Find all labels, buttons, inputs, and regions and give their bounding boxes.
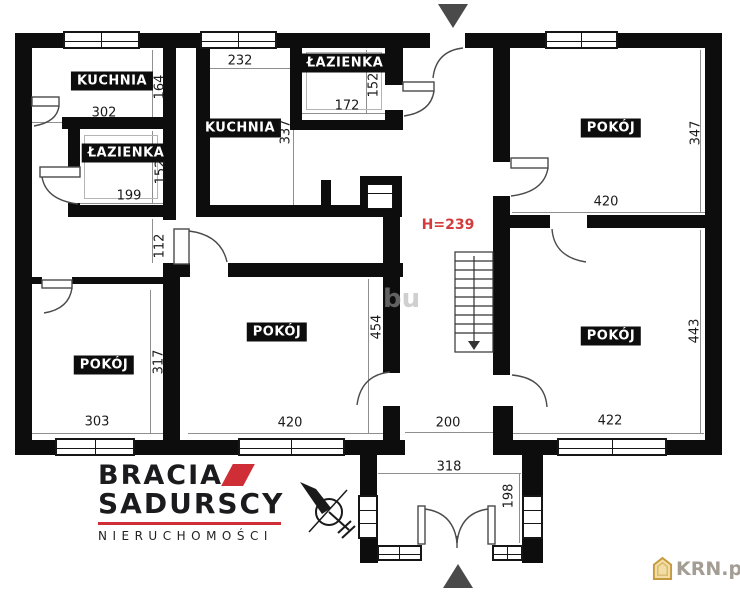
portal-name: KRN.pl (676, 558, 740, 580)
wall (705, 33, 722, 455)
dim-164: 164 (153, 75, 168, 100)
window (200, 31, 277, 49)
agency-name-line1: BRACIA (98, 462, 223, 489)
room-label-pokoj-bottom-right: POKÓJ (581, 327, 641, 346)
wall (290, 120, 403, 130)
wall (360, 537, 378, 563)
door-arc (425, 509, 457, 543)
window (358, 495, 378, 539)
dim-443: 443 (688, 319, 703, 344)
wall (30, 277, 42, 284)
door-arc (34, 106, 59, 126)
dim-198: 198 (502, 484, 517, 509)
room-label-kuchnia-top-left: KUCHNIA (71, 72, 153, 91)
window (545, 31, 618, 49)
dim-422: 422 (598, 414, 623, 429)
wall (72, 277, 168, 284)
wall (493, 48, 510, 162)
dim-line (405, 432, 493, 433)
portal-house-icon (652, 556, 673, 581)
door-leaf (42, 280, 72, 288)
wall (587, 215, 722, 228)
window (377, 545, 422, 561)
wall (383, 406, 400, 440)
dim-line (32, 433, 163, 434)
agency-logo: BRACIA SADURSCY NIERUCHOMOŚCI (98, 462, 284, 543)
door-leaf (32, 97, 59, 106)
door-arc (44, 288, 72, 313)
wall (360, 455, 377, 497)
agency-tagline: NIERUCHOMOŚCI (98, 529, 284, 543)
room-label-pokoj-center: POKÓJ (247, 323, 307, 342)
entrance-arrow-top (438, 4, 468, 28)
door-arc (511, 168, 548, 196)
wall (228, 263, 403, 277)
dim-337: 337 (279, 120, 294, 145)
logo-red-slash (221, 464, 255, 486)
dim-454: 454 (370, 315, 385, 340)
wall (493, 228, 510, 375)
door-arc (357, 372, 390, 405)
chimney-flue (367, 184, 393, 209)
dim-347: 347 (689, 121, 704, 146)
room-label-pokoj-bottom-left: POKÓJ (74, 356, 134, 375)
room-label-pokoj-top-right: POKÓJ (581, 119, 641, 138)
staircase (455, 252, 493, 352)
window (557, 438, 667, 456)
wall (68, 129, 80, 169)
dim-line (368, 279, 369, 433)
wall (493, 196, 510, 217)
door-leaf (418, 506, 425, 544)
dim-line (512, 433, 704, 434)
door-arc (457, 509, 488, 543)
wall (321, 180, 331, 213)
dim-317: 317 (152, 350, 167, 375)
window (63, 31, 140, 49)
wall (522, 537, 543, 563)
wall (522, 452, 543, 497)
entrance-arrow-bottom (443, 564, 473, 588)
room-label-kuchnia-center: KUCHNIA (199, 119, 281, 138)
compass-icon (300, 482, 355, 538)
window (238, 438, 345, 456)
window (522, 495, 543, 539)
ceiling-height-note: H=239 (422, 217, 475, 233)
stairs-direction-arrow (468, 341, 480, 350)
door-arc (42, 177, 78, 204)
door-arc (552, 229, 586, 262)
wall (68, 205, 176, 217)
door-opening (430, 33, 465, 48)
room-label-lazienka-top: ŁAZIENKA (301, 54, 390, 73)
portal-logo: KRN.pl (652, 556, 740, 581)
dim-152-bath-top: 152 (367, 73, 382, 98)
door-leaf (174, 229, 189, 264)
dim-152-bath-left: 152 (154, 160, 169, 185)
door-leaf (488, 506, 495, 544)
watermark: bu (383, 284, 420, 314)
dim-199: 199 (117, 189, 142, 204)
window (55, 438, 135, 456)
dim-200: 200 (436, 416, 461, 431)
logo-red-rule (98, 522, 281, 525)
dim-line (512, 212, 705, 213)
agency-name-line2: SADURSCY (98, 489, 284, 519)
dim-172: 172 (335, 99, 360, 114)
wall (290, 33, 302, 130)
door-leaf (511, 158, 548, 168)
door-leaf (403, 82, 434, 91)
wall (15, 33, 32, 455)
dim-318: 318 (437, 460, 462, 475)
window (492, 545, 523, 561)
door-arc (189, 231, 227, 262)
dim-420-center: 420 (278, 416, 303, 431)
door-arc (512, 375, 547, 407)
dim-232: 232 (228, 54, 253, 69)
dim-line (519, 474, 520, 543)
dim-303: 303 (85, 415, 110, 430)
dim-112: 112 (153, 234, 168, 259)
wall (493, 406, 513, 455)
wall (493, 215, 550, 228)
dim-420-top-right: 420 (594, 195, 619, 210)
floor-plan-canvas: KUCHNIA ŁAZIENKA KUCHNIA ŁAZIENKA POKÓJ … (0, 0, 740, 596)
dim-line (188, 433, 383, 434)
door-arc (433, 48, 463, 78)
dim-302: 302 (92, 106, 117, 121)
door-arc (404, 91, 434, 116)
wall (196, 205, 363, 217)
